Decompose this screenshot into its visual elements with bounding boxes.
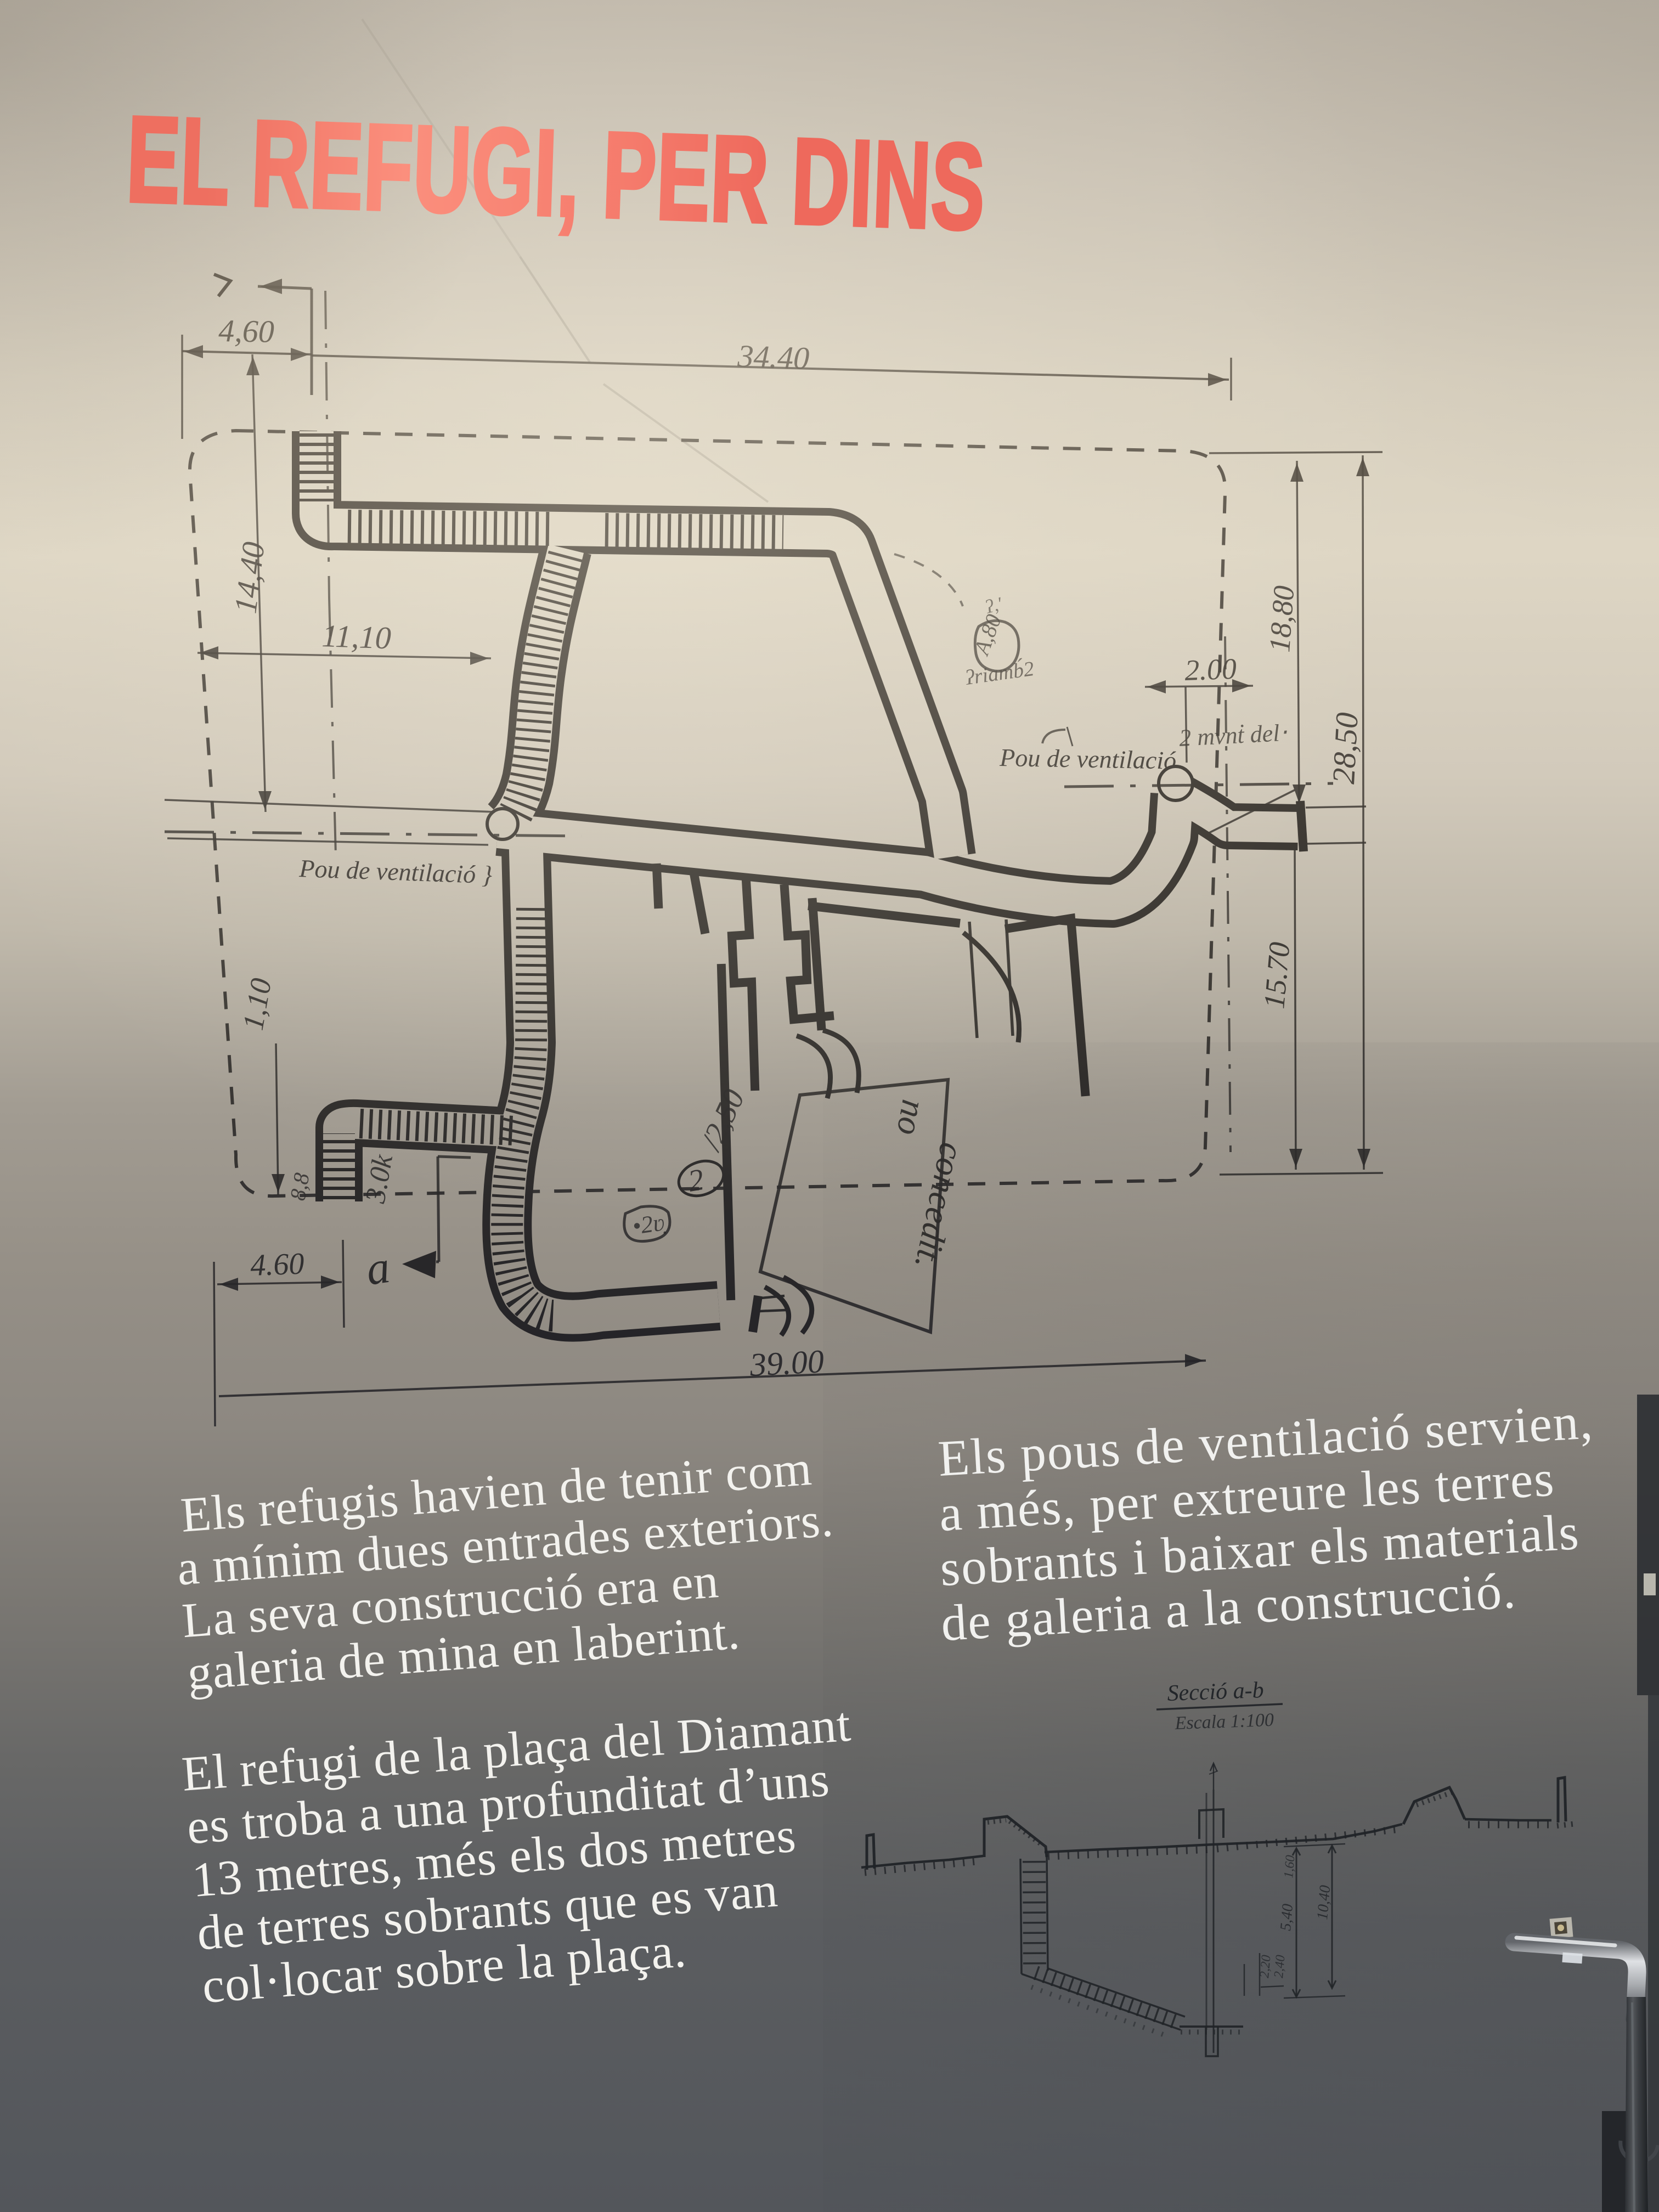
svg-text:Escala 1:100: Escala 1:100: [1174, 1710, 1274, 1734]
svg-text:10,40: 10,40: [1314, 1884, 1334, 1920]
svg-text:1,60: 1,60: [1282, 1854, 1298, 1878]
svg-text:EL REFUGI, PER DINS: EL REFUGI, PER DINS: [125, 91, 988, 255]
svg-text:Secció a-b: Secció a-b: [1167, 1678, 1265, 1706]
svg-text:2,40: 2,40: [1272, 1954, 1288, 1978]
svg-text:5,40: 5,40: [1277, 1903, 1296, 1932]
svg-text:39.00: 39.00: [748, 1343, 825, 1383]
